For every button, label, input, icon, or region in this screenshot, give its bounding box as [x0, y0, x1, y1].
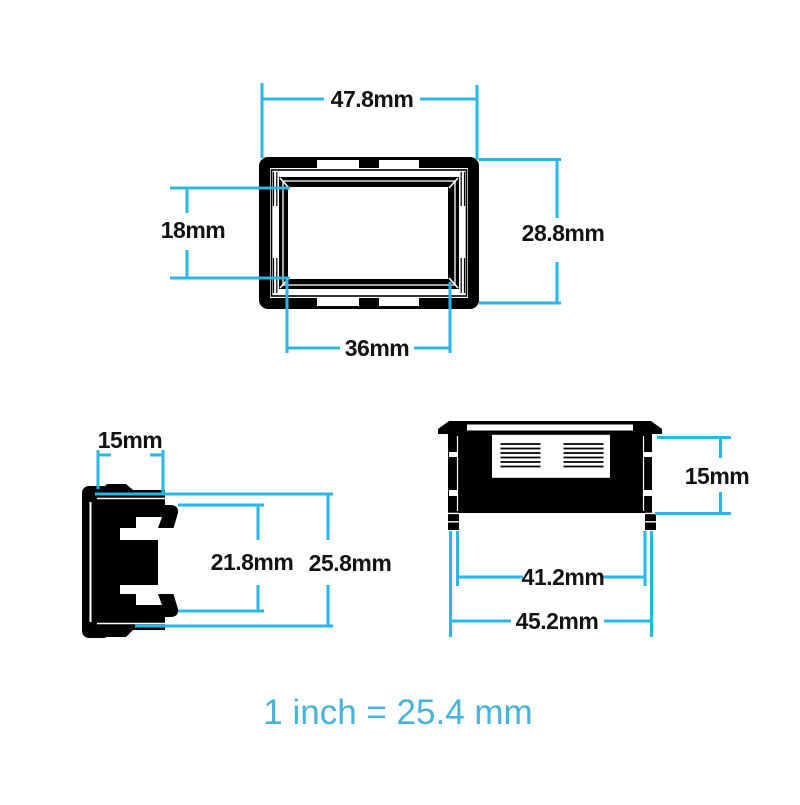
top-edge-slit-left-lower — [449, 490, 457, 496]
front-bottom-cutout-left — [317, 296, 359, 306]
dim-label-front-window-height: 18mm — [161, 217, 226, 243]
side-top-snap-hook — [110, 505, 178, 528]
top-view — [438, 421, 662, 530]
top-leg-detail-lines — [448, 513, 656, 521]
top-edge-slit-right-lower — [644, 490, 652, 496]
dim-label-side-overall-height: 25.8mm — [309, 550, 392, 576]
dim-label-top-snap-width: 41.2mm — [522, 564, 605, 590]
dim-label-top-overall-width: 45.2mm — [516, 608, 599, 634]
dim-label-side-depth: 15mm — [98, 427, 163, 453]
top-flange-strip-gap — [467, 425, 633, 431]
dimension-drawing: 47.8mm 28.8mm 18mm 36mm 15mm 21.8mm 25.8… — [0, 0, 800, 800]
dimension-drawing-page: 47.8mm 28.8mm 18mm 36mm 15mm 21.8mm 25.8… — [0, 0, 800, 800]
dim-label-side-clip-opening: 21.8mm — [211, 549, 294, 575]
side-bottom-snap-hook — [110, 594, 178, 617]
dim-label-front-outer-width: 47.8mm — [331, 86, 414, 112]
top-edge-slit-left-upper — [449, 452, 457, 457]
side-view-dimensions: 15mm 21.8mm 25.8mm — [95, 427, 391, 626]
front-bottom-cutout-right — [379, 296, 419, 306]
dim-label-front-window-width: 36mm — [345, 335, 410, 361]
top-edge-slit-right-upper — [644, 452, 652, 457]
side-middle-block — [108, 540, 158, 585]
unit-conversion-caption: 1 inch = 25.4 mm — [263, 693, 532, 732]
dim-label-top-depth: 15mm — [685, 463, 750, 489]
side-front-flange — [82, 486, 110, 638]
dim-label-front-outer-height: 28.8mm — [522, 220, 605, 246]
front-view — [259, 157, 479, 309]
front-display-window — [288, 187, 448, 279]
side-view — [82, 484, 178, 638]
